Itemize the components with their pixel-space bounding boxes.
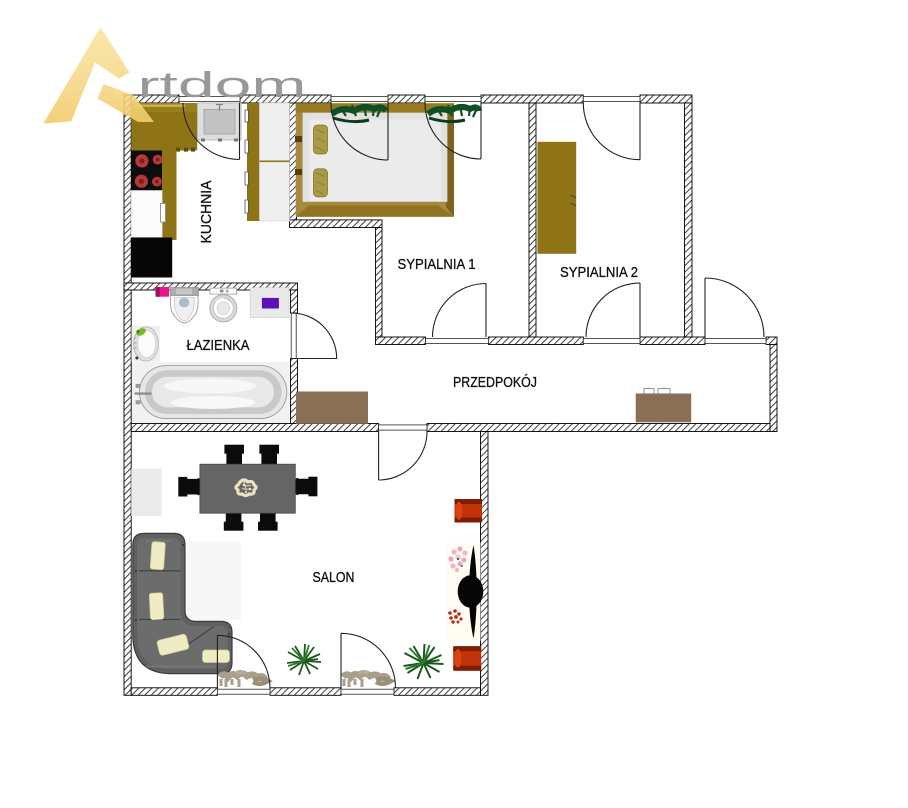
svg-text:ŁAZIENKA: ŁAZIENKA	[187, 338, 250, 354]
svg-text:SYPIALNIA 1: SYPIALNIA 1	[398, 257, 476, 273]
svg-text:SALON: SALON	[313, 570, 355, 586]
svg-text:SYPIALNIA 2: SYPIALNIA 2	[560, 265, 638, 281]
svg-text:KUCHNIA: KUCHNIA	[199, 180, 215, 243]
svg-text:rtdom: rtdom	[138, 64, 307, 105]
svg-text:PRZEDPOKÓJ: PRZEDPOKÓJ	[453, 374, 537, 391]
